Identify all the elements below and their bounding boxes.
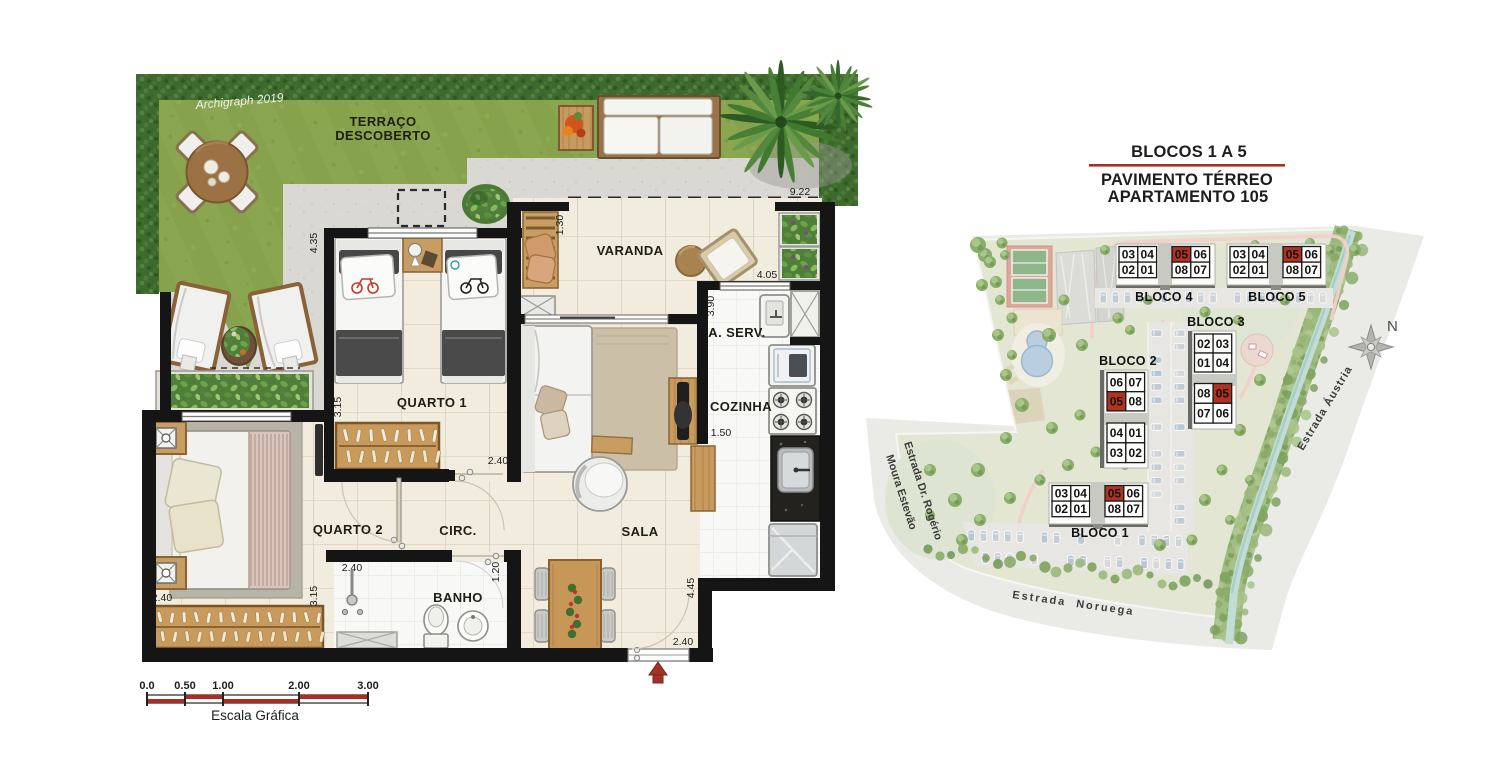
- svg-text:05: 05: [1108, 487, 1122, 501]
- svg-text:01: 01: [1141, 263, 1155, 277]
- svg-text:BLOCO 1: BLOCO 1: [1071, 526, 1129, 540]
- svg-text:05: 05: [1110, 395, 1124, 409]
- svg-text:03: 03: [1233, 248, 1247, 262]
- svg-text:0.50: 0.50: [174, 680, 195, 692]
- svg-text:04: 04: [1141, 248, 1155, 262]
- svg-text:02: 02: [1197, 337, 1211, 351]
- svg-text:01: 01: [1197, 356, 1211, 370]
- svg-text:3.90: 3.90: [705, 296, 717, 317]
- svg-text:3.15: 3.15: [332, 397, 344, 418]
- svg-text:3.00: 3.00: [357, 680, 378, 692]
- svg-text:06: 06: [1305, 248, 1319, 262]
- svg-text:BANHO: BANHO: [433, 590, 483, 605]
- svg-text:2.40: 2.40: [488, 455, 509, 467]
- svg-text:01: 01: [1074, 502, 1088, 516]
- svg-text:2.40: 2.40: [342, 562, 363, 574]
- svg-text:3.15: 3.15: [308, 586, 320, 607]
- svg-text:06: 06: [1216, 407, 1230, 421]
- svg-text:02: 02: [1129, 446, 1143, 460]
- svg-text:0.0: 0.0: [139, 680, 154, 692]
- svg-text:02: 02: [1122, 263, 1136, 277]
- svg-text:4.45: 4.45: [685, 578, 697, 599]
- svg-text:05: 05: [1216, 387, 1230, 401]
- svg-text:PAVIMENTO TÉRREO: PAVIMENTO TÉRREO: [1101, 170, 1273, 189]
- svg-text:06: 06: [1127, 487, 1141, 501]
- svg-text:08: 08: [1286, 263, 1300, 277]
- svg-text:BLOCO 2: BLOCO 2: [1099, 354, 1157, 368]
- svg-text:06: 06: [1194, 248, 1208, 262]
- svg-text:CIRC.: CIRC.: [439, 523, 476, 538]
- svg-text:07: 07: [1129, 375, 1143, 389]
- svg-text:08: 08: [1108, 502, 1122, 516]
- svg-text:9.22: 9.22: [790, 186, 811, 198]
- svg-text:COZINHA: COZINHA: [710, 399, 772, 414]
- svg-text:02: 02: [1233, 263, 1247, 277]
- svg-text:04: 04: [1252, 248, 1266, 262]
- svg-text:07: 07: [1305, 263, 1319, 277]
- svg-text:2.40: 2.40: [673, 636, 694, 648]
- svg-text:08: 08: [1197, 387, 1211, 401]
- svg-text:2.00: 2.00: [288, 680, 309, 692]
- svg-text:05: 05: [1286, 248, 1300, 262]
- svg-text:01: 01: [1129, 426, 1143, 440]
- svg-text:1.30: 1.30: [554, 215, 566, 236]
- svg-text:APARTAMENTO 105: APARTAMENTO 105: [1108, 188, 1269, 206]
- svg-text:A. SERV.: A. SERV.: [708, 325, 765, 340]
- svg-text:SALA: SALA: [622, 524, 659, 539]
- svg-text:BLOCO 5: BLOCO 5: [1248, 290, 1306, 304]
- svg-text:BLOCOS 1 A 5: BLOCOS 1 A 5: [1131, 143, 1247, 161]
- svg-text:03: 03: [1055, 487, 1069, 501]
- svg-text:1.50: 1.50: [711, 427, 732, 439]
- svg-text:06: 06: [1110, 375, 1124, 389]
- svg-text:03: 03: [1110, 446, 1124, 460]
- svg-text:07: 07: [1194, 263, 1208, 277]
- svg-text:2.40: 2.40: [152, 592, 173, 604]
- svg-text:TERRAÇO: TERRAÇO: [349, 114, 416, 129]
- svg-text:03: 03: [1122, 248, 1136, 262]
- svg-text:08: 08: [1175, 263, 1189, 277]
- svg-text:05: 05: [1175, 248, 1189, 262]
- svg-text:04: 04: [1110, 426, 1124, 440]
- svg-text:01: 01: [1252, 263, 1266, 277]
- svg-text:1.20: 1.20: [490, 562, 502, 583]
- svg-text:QUARTO 2: QUARTO 2: [313, 522, 383, 537]
- svg-text:1.00: 1.00: [212, 680, 233, 692]
- svg-text:07: 07: [1127, 502, 1141, 516]
- svg-text:Escala Gráfica: Escala Gráfica: [211, 708, 299, 723]
- svg-text:VARANDA: VARANDA: [597, 243, 664, 258]
- svg-text:DESCOBERTO: DESCOBERTO: [335, 128, 431, 143]
- svg-text:QUARTO 1: QUARTO 1: [397, 395, 467, 410]
- svg-text:4.05: 4.05: [757, 269, 778, 281]
- svg-text:N: N: [1387, 318, 1398, 335]
- svg-text:03: 03: [1216, 337, 1230, 351]
- svg-text:04: 04: [1216, 356, 1230, 370]
- svg-text:08: 08: [1129, 395, 1143, 409]
- svg-text:04: 04: [1074, 487, 1088, 501]
- svg-text:4.35: 4.35: [308, 233, 320, 254]
- svg-text:02: 02: [1055, 502, 1069, 516]
- svg-text:BLOCO 3: BLOCO 3: [1187, 315, 1245, 329]
- svg-text:BLOCO 4: BLOCO 4: [1135, 290, 1193, 304]
- svg-text:07: 07: [1197, 407, 1211, 421]
